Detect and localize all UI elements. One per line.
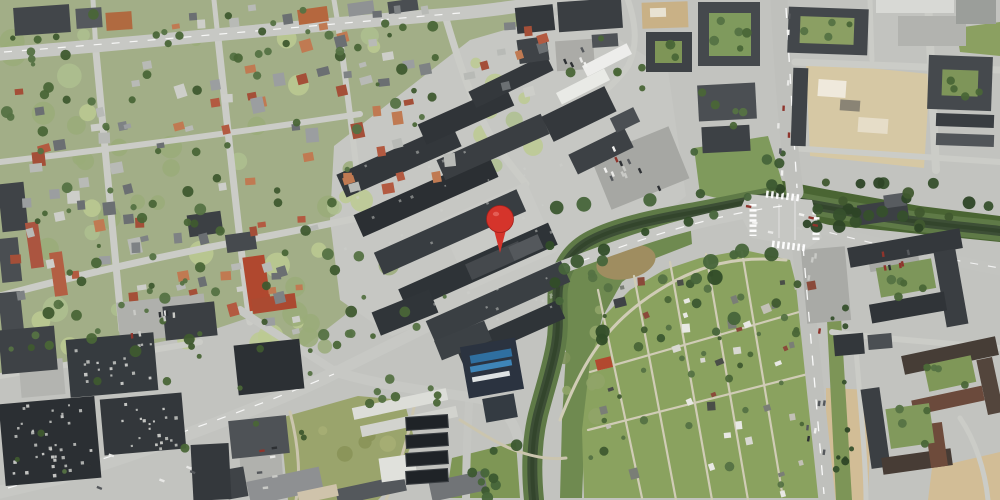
tree <box>234 53 243 62</box>
tree <box>800 422 804 426</box>
tree <box>803 220 812 229</box>
lawn-patch <box>318 426 327 435</box>
house <box>110 161 124 174</box>
roof-dot <box>157 434 161 438</box>
tree <box>684 217 694 227</box>
tree <box>318 329 329 340</box>
tree <box>391 392 401 402</box>
tree <box>107 187 113 193</box>
tree <box>77 276 87 286</box>
tree <box>842 380 847 385</box>
tree <box>376 82 380 86</box>
tree <box>40 90 49 99</box>
tree <box>180 444 189 453</box>
tree <box>37 429 44 436</box>
car <box>173 312 176 318</box>
tree <box>895 405 904 414</box>
roof-dot <box>61 413 63 415</box>
house <box>249 226 257 236</box>
roof-dot <box>84 373 88 377</box>
building <box>701 125 750 153</box>
tree <box>63 96 71 104</box>
tree <box>399 307 410 318</box>
tree <box>698 88 706 96</box>
roof-dot <box>148 423 150 425</box>
tree <box>192 148 201 157</box>
tree <box>545 241 554 250</box>
tree <box>42 211 48 217</box>
tree <box>688 370 695 377</box>
lawn-patch <box>77 29 90 42</box>
tree <box>387 33 392 38</box>
tree <box>975 88 982 95</box>
roof-dot <box>17 427 20 430</box>
tree <box>396 64 407 75</box>
tree <box>35 218 41 224</box>
building <box>867 333 892 350</box>
house <box>210 79 221 91</box>
tree <box>856 179 866 189</box>
roof-dot <box>136 409 138 411</box>
tree <box>300 7 307 14</box>
tree <box>43 307 55 319</box>
tree <box>900 280 907 287</box>
house <box>343 71 352 78</box>
tree <box>262 281 271 290</box>
garden-shed <box>637 277 645 286</box>
tree <box>97 244 101 248</box>
tree <box>237 385 242 390</box>
tree <box>300 225 311 236</box>
tree <box>897 210 909 222</box>
house <box>123 214 134 224</box>
roof-dot <box>89 449 92 452</box>
tree <box>638 64 646 72</box>
roof-dot <box>141 344 143 346</box>
roof-dot <box>26 404 29 407</box>
house <box>257 222 266 228</box>
roof-dot <box>35 456 37 458</box>
tree <box>657 334 665 342</box>
tree <box>898 419 907 428</box>
tree <box>737 45 743 51</box>
tree <box>690 148 698 156</box>
tree <box>390 98 401 109</box>
tree <box>914 207 925 218</box>
tree <box>381 19 389 27</box>
tree <box>253 72 261 80</box>
tree <box>253 421 259 427</box>
roof-dot <box>143 419 146 422</box>
car <box>777 123 780 128</box>
house <box>197 19 206 28</box>
house <box>378 78 390 87</box>
garden-shed <box>789 413 796 420</box>
tree <box>841 457 849 465</box>
tree <box>354 44 362 52</box>
tree <box>793 327 799 333</box>
building <box>592 33 619 48</box>
tree <box>762 154 773 165</box>
garden-shed <box>724 432 731 438</box>
tree <box>735 244 749 258</box>
tree <box>86 333 97 344</box>
tree <box>197 331 202 336</box>
tree <box>641 326 648 333</box>
tree <box>950 85 957 92</box>
tree <box>921 440 929 448</box>
roof-dot <box>25 471 29 475</box>
tree <box>478 478 485 485</box>
tree <box>293 119 301 127</box>
tree <box>658 274 668 284</box>
roof-dot <box>149 377 152 380</box>
roof-dot <box>174 416 178 420</box>
tree <box>709 210 718 219</box>
tree <box>213 174 221 182</box>
tree <box>728 312 741 325</box>
tree <box>130 204 136 210</box>
tree <box>130 345 142 357</box>
tree <box>330 265 340 275</box>
tree <box>800 27 808 35</box>
tree <box>427 92 436 101</box>
lawn-patch <box>586 378 597 389</box>
tree <box>88 9 99 20</box>
tree <box>333 341 342 350</box>
building <box>840 99 861 111</box>
tree <box>282 249 289 256</box>
lawn-patch <box>337 446 353 462</box>
car <box>788 132 791 137</box>
house <box>381 182 395 194</box>
tree <box>679 355 685 361</box>
roof-dot <box>21 423 23 425</box>
tree <box>709 36 719 46</box>
building <box>817 79 846 98</box>
tree <box>149 283 155 289</box>
tree <box>102 123 109 130</box>
tree <box>264 48 272 56</box>
roof-dot <box>120 382 123 385</box>
tree <box>336 47 345 56</box>
roof-dot <box>51 409 53 411</box>
building <box>557 0 623 32</box>
tree <box>144 308 149 313</box>
garden-shed <box>677 279 684 286</box>
roof-dot <box>150 343 152 345</box>
house <box>303 152 315 162</box>
tree <box>601 418 607 424</box>
tree <box>87 97 95 105</box>
house <box>53 139 66 151</box>
tree <box>831 316 835 320</box>
map-viewport[interactable] <box>0 0 1000 500</box>
tree <box>947 77 955 85</box>
roof-dot <box>121 420 123 422</box>
tree <box>778 481 785 488</box>
tree <box>143 70 152 79</box>
car <box>257 471 263 474</box>
tree <box>707 270 722 285</box>
roof-dot <box>42 453 45 456</box>
roof-dot <box>165 437 168 440</box>
tree <box>588 455 593 460</box>
tree <box>928 178 939 189</box>
house <box>222 94 233 103</box>
house <box>16 291 26 301</box>
tree <box>963 196 976 209</box>
house <box>91 123 103 131</box>
basin <box>406 451 449 467</box>
tree <box>1 106 13 118</box>
tree <box>45 341 54 350</box>
building <box>956 0 996 24</box>
roof-dot <box>98 369 100 371</box>
tree <box>274 187 281 194</box>
tree <box>730 122 738 130</box>
house <box>305 127 319 142</box>
tree <box>666 325 672 331</box>
tree <box>180 281 185 286</box>
tree <box>747 351 753 357</box>
roof-dot <box>53 474 57 478</box>
tree <box>192 85 202 95</box>
house <box>443 153 456 167</box>
house <box>14 88 23 95</box>
roof-dot <box>86 380 89 383</box>
building <box>191 443 232 500</box>
tree <box>28 344 35 351</box>
house <box>131 80 140 87</box>
tree <box>432 54 439 61</box>
tree <box>354 251 365 262</box>
tree <box>282 40 289 47</box>
roof-dot <box>68 422 71 425</box>
house <box>173 233 182 244</box>
tree <box>53 34 60 41</box>
tree <box>165 40 172 47</box>
aerial-map-canvas[interactable] <box>0 0 1000 500</box>
tree <box>413 323 421 331</box>
tree <box>31 62 35 66</box>
tree <box>159 293 170 304</box>
tree <box>93 377 101 385</box>
tree <box>734 27 743 36</box>
tree <box>225 12 232 19</box>
tree <box>175 31 183 39</box>
tree <box>641 228 649 236</box>
tree <box>692 298 702 308</box>
tree <box>603 314 607 318</box>
tree <box>849 446 854 451</box>
roof-dot <box>160 441 163 444</box>
car <box>787 80 790 86</box>
tree <box>301 435 307 441</box>
tree <box>365 399 374 408</box>
tree <box>851 208 861 218</box>
tree <box>10 35 15 40</box>
tree <box>182 186 193 197</box>
tree <box>345 167 350 172</box>
roof-dot <box>54 455 57 458</box>
tree <box>739 108 748 117</box>
tree <box>412 122 417 127</box>
roof-dot <box>61 415 64 418</box>
tree <box>129 96 136 103</box>
garden-shed <box>620 285 625 290</box>
tree <box>149 200 157 208</box>
lawn-patch <box>470 58 481 69</box>
tree <box>352 124 362 134</box>
tree <box>555 297 563 305</box>
garden-shed <box>806 280 816 290</box>
garden-shed <box>700 358 706 363</box>
car <box>779 148 782 154</box>
tree <box>385 374 395 384</box>
tree <box>308 371 313 376</box>
tree <box>427 21 438 32</box>
tree <box>725 462 735 472</box>
tree <box>345 306 357 318</box>
tree <box>666 41 673 48</box>
roof-dot <box>79 409 82 412</box>
tree <box>742 28 752 38</box>
tree <box>480 468 489 477</box>
building <box>0 396 101 486</box>
tree <box>347 329 356 338</box>
house <box>419 63 432 76</box>
house <box>372 106 381 117</box>
tree <box>873 177 884 188</box>
tree <box>828 19 836 27</box>
basin <box>406 415 449 431</box>
roof-dot <box>124 403 127 406</box>
building <box>936 113 994 128</box>
tree <box>32 331 40 339</box>
tree <box>923 407 930 414</box>
tree <box>256 345 264 353</box>
house <box>189 13 197 21</box>
tree <box>190 220 198 228</box>
roof-dot <box>68 404 70 406</box>
tree <box>325 31 334 40</box>
house <box>272 72 285 86</box>
roof-dot <box>96 362 99 365</box>
garden-shed <box>735 421 742 430</box>
tree <box>255 50 263 58</box>
roof-dot <box>162 408 165 411</box>
tree <box>378 395 386 403</box>
tree <box>774 158 784 168</box>
house <box>98 132 110 143</box>
house <box>218 182 227 191</box>
tree <box>71 310 82 321</box>
building <box>100 393 187 456</box>
tree <box>428 385 434 391</box>
lawn-patch <box>83 199 101 217</box>
tree <box>305 29 310 34</box>
tree <box>588 270 596 278</box>
tree <box>863 210 874 221</box>
lawn-patch <box>79 104 96 121</box>
tree <box>664 296 671 303</box>
tree <box>691 273 702 284</box>
building <box>13 4 71 36</box>
tree <box>433 399 441 407</box>
roof-dot <box>50 448 53 451</box>
roof-dot <box>149 428 151 430</box>
building <box>75 7 102 29</box>
tree <box>961 92 969 100</box>
tree <box>621 436 625 440</box>
tree <box>833 466 840 473</box>
roof-dot <box>51 455 54 458</box>
roof-dot <box>49 421 52 424</box>
tree <box>742 407 748 413</box>
tree <box>935 365 942 372</box>
roof-dot <box>34 444 37 447</box>
car <box>814 253 817 259</box>
tree <box>95 328 101 334</box>
tree <box>902 187 914 199</box>
tree <box>511 439 523 451</box>
building <box>833 333 865 357</box>
tree <box>490 447 498 455</box>
tree <box>599 447 608 456</box>
tree <box>634 342 644 352</box>
house <box>142 60 152 69</box>
building <box>697 83 757 122</box>
tree <box>299 430 304 435</box>
tree <box>617 394 622 399</box>
roof-dot <box>54 444 56 446</box>
car <box>131 333 134 339</box>
tree <box>91 258 102 269</box>
house <box>29 163 43 173</box>
tree <box>419 114 425 120</box>
house <box>282 13 293 25</box>
tree <box>846 21 852 27</box>
tree <box>643 193 656 206</box>
tree <box>914 223 923 232</box>
roof-dot <box>23 407 26 410</box>
tree <box>737 363 743 369</box>
tree <box>194 203 206 215</box>
roof-dot <box>86 360 90 364</box>
tree <box>732 108 738 114</box>
tree <box>60 50 70 60</box>
roof-dot <box>170 439 173 442</box>
tree <box>685 422 692 429</box>
tree <box>224 142 231 149</box>
tree <box>27 47 36 56</box>
building <box>876 0 954 13</box>
tree <box>163 377 172 386</box>
tree <box>725 375 733 383</box>
tree <box>308 348 313 353</box>
tree <box>374 388 381 395</box>
building <box>66 332 159 397</box>
tree <box>34 36 42 44</box>
tree <box>8 346 13 351</box>
tree <box>149 253 156 260</box>
tree <box>944 212 953 221</box>
house <box>229 18 240 28</box>
car <box>166 310 169 316</box>
tree <box>62 469 67 474</box>
tree <box>696 189 705 198</box>
